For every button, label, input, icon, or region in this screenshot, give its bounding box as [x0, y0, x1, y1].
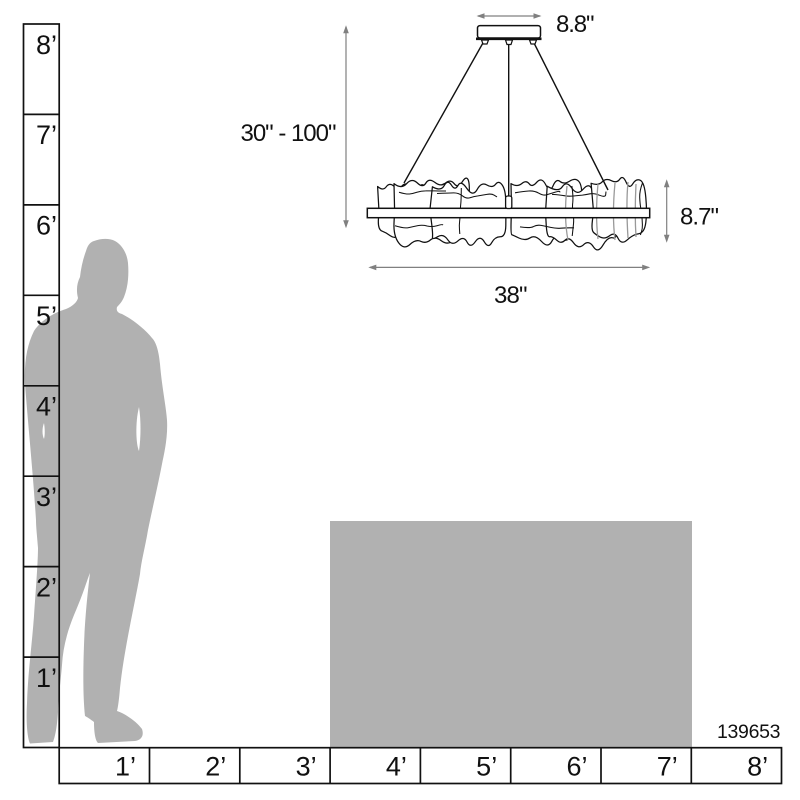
svg-text:8’: 8’	[36, 30, 57, 60]
svg-text:38": 38"	[494, 282, 528, 309]
svg-text:6’: 6’	[566, 752, 587, 782]
svg-text:8.7": 8.7"	[680, 204, 719, 231]
svg-text:2’: 2’	[36, 572, 57, 602]
svg-text:3’: 3’	[36, 482, 57, 512]
svg-text:7’: 7’	[36, 120, 57, 150]
svg-text:8’: 8’	[747, 752, 768, 782]
svg-text:1’: 1’	[36, 663, 57, 693]
svg-text:4’: 4’	[36, 392, 57, 422]
svg-text:8.8": 8.8"	[556, 11, 595, 38]
svg-text:5’: 5’	[36, 301, 57, 331]
svg-text:7’: 7’	[657, 752, 678, 782]
svg-text:30" - 100": 30" - 100"	[241, 120, 337, 147]
svg-text:6’: 6’	[36, 211, 57, 241]
svg-text:3’: 3’	[296, 752, 317, 782]
svg-text:4’: 4’	[386, 752, 407, 782]
svg-text:2’: 2’	[205, 752, 226, 782]
svg-text:5’: 5’	[476, 752, 497, 782]
svg-text:1’: 1’	[115, 752, 136, 782]
svg-text:139653: 139653	[717, 721, 781, 743]
